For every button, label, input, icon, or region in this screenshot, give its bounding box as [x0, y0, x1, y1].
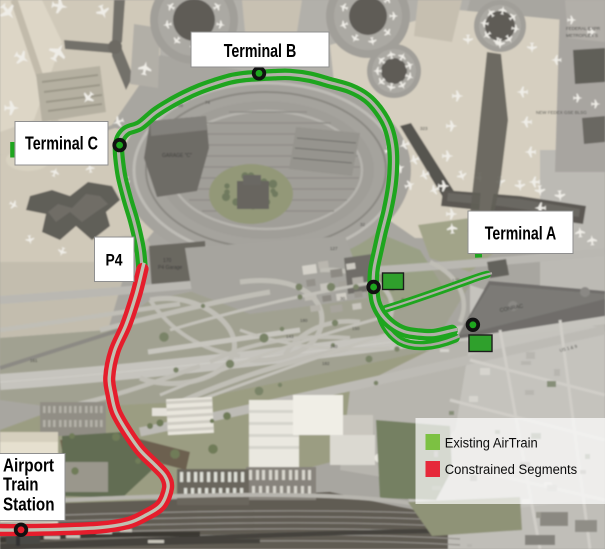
svg-text:32: 32	[360, 222, 366, 227]
svg-text:180: 180	[300, 318, 308, 323]
svg-text:Train: Train	[3, 475, 39, 495]
svg-text:Terminal B: Terminal B	[224, 40, 297, 61]
svg-text:182: 182	[322, 361, 330, 366]
svg-text:Existing AirTrain: Existing AirTrain	[445, 436, 538, 452]
svg-text:143: 143	[286, 334, 294, 339]
svg-text:METROPLEX S: METROPLEX S	[566, 33, 598, 38]
svg-text:323: 323	[420, 126, 428, 131]
svg-text:30: 30	[340, 296, 346, 301]
svg-text:GARAGE "C": GARAGE "C"	[162, 153, 192, 159]
svg-text:74: 74	[205, 100, 211, 105]
svg-text:140: 140	[330, 344, 338, 349]
svg-text:NEW FEDEX GSE BLSG: NEW FEDEX GSE BLSG	[536, 110, 587, 115]
svg-text:Terminal C: Terminal C	[25, 133, 98, 154]
svg-text:Station: Station	[3, 495, 55, 515]
svg-text:170: 170	[163, 258, 172, 264]
svg-text:161: 161	[30, 358, 38, 363]
svg-text:150: 150	[352, 326, 360, 331]
svg-text:Constrained Segments: Constrained Segments	[445, 462, 578, 478]
svg-text:P4: P4	[106, 251, 123, 270]
svg-text:Airport: Airport	[3, 456, 54, 476]
svg-text:127: 127	[330, 246, 338, 251]
svg-text:P4 Garage: P4 Garage	[158, 265, 182, 271]
svg-text:FEDERAL EXPR: FEDERAL EXPR	[566, 26, 601, 31]
svg-text:Terminal A: Terminal A	[485, 223, 557, 244]
